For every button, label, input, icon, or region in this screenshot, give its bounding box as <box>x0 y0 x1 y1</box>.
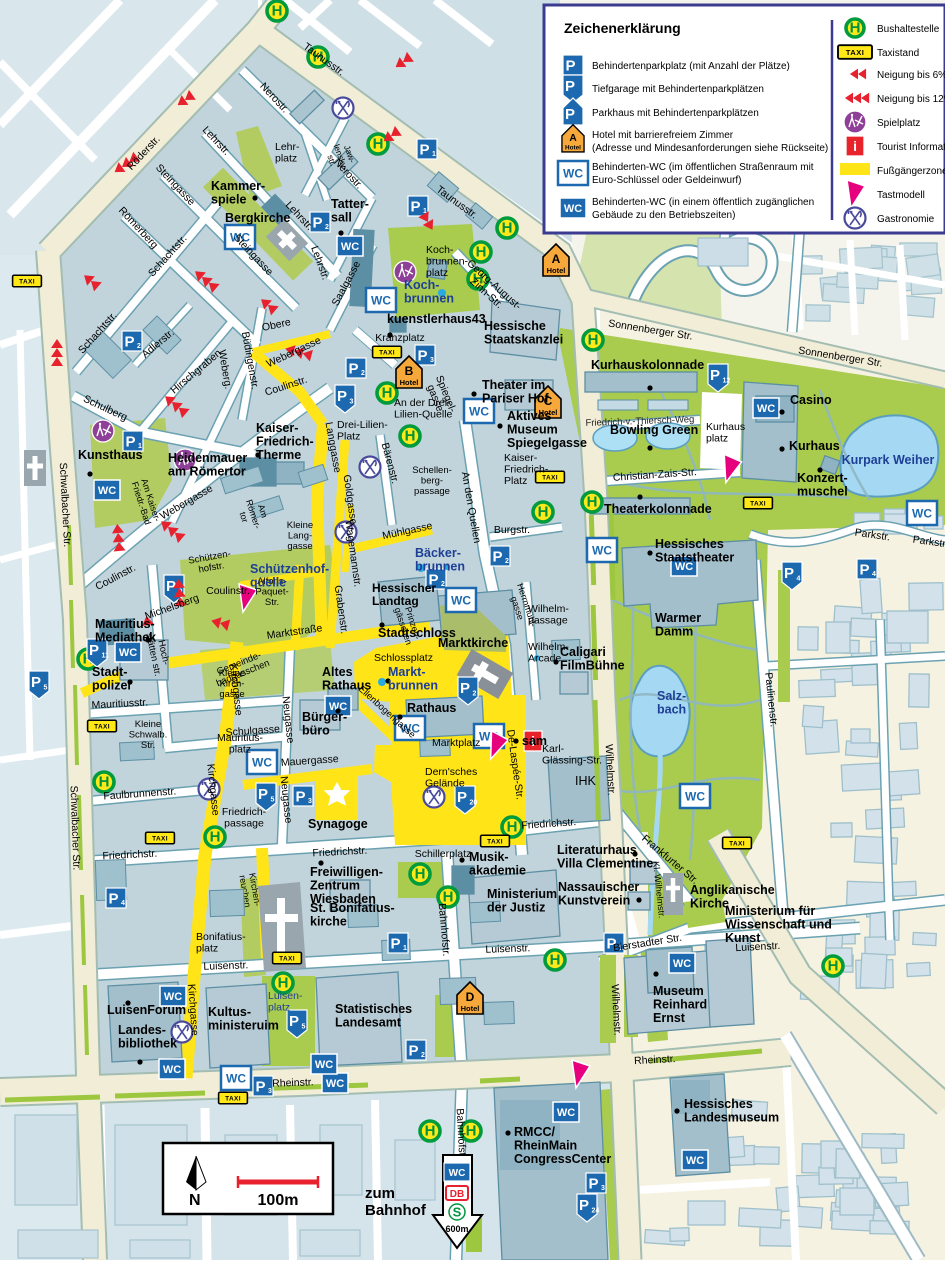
svg-text:TAXI: TAXI <box>379 350 395 357</box>
svg-text:P: P <box>419 142 429 159</box>
svg-text:H: H <box>373 136 384 153</box>
svg-text:Fußgängerzone: Fußgängerzone <box>877 166 945 177</box>
svg-text:H: H <box>210 829 221 846</box>
svg-text:Hotel: Hotel <box>461 1004 480 1013</box>
svg-text:20: 20 <box>470 800 478 807</box>
svg-text:Kurpark Weiher: Kurpark Weiher <box>842 453 935 467</box>
svg-text:TAXI: TAXI <box>225 1096 241 1103</box>
svg-text:Heidenmaueram Römertor: Heidenmaueram Römertor <box>168 451 247 479</box>
svg-text:P: P <box>255 1079 265 1096</box>
svg-text:Rheinstr.: Rheinstr. <box>272 1076 314 1089</box>
svg-text:Kunsthaus: Kunsthaus <box>78 448 143 462</box>
svg-text:H: H <box>850 20 861 37</box>
svg-text:TAXI: TAXI <box>487 839 503 846</box>
svg-text:H: H <box>502 220 513 237</box>
svg-text:Wilhelm-passage: Wilhelm-passage <box>528 603 569 627</box>
svg-text:DB: DB <box>450 1189 464 1200</box>
svg-text:Marktplatz: Marktplatz <box>432 737 480 749</box>
svg-text:H: H <box>99 774 110 791</box>
svg-text:P: P <box>492 549 502 566</box>
svg-text:IHK: IHK <box>575 774 597 788</box>
svg-text:NassauischerKunstverein: NassauischerKunstverein <box>558 880 639 908</box>
svg-text:KleineLang-gasse: KleineLang-gasse <box>287 520 313 552</box>
svg-text:WC: WC <box>564 203 582 215</box>
svg-text:P: P <box>460 680 470 697</box>
svg-text:P: P <box>258 786 268 803</box>
svg-text:TAXI: TAXI <box>729 841 745 848</box>
svg-text:WC: WC <box>912 507 932 521</box>
svg-text:P: P <box>295 789 305 806</box>
svg-text:P: P <box>784 565 794 582</box>
svg-text:P: P <box>337 388 347 405</box>
svg-text:kuenstlerhaus43: kuenstlerhaus43 <box>387 312 486 326</box>
svg-text:B: B <box>405 364 414 378</box>
svg-text:N: N <box>189 1192 201 1209</box>
svg-text:D: D <box>466 990 475 1004</box>
svg-text:TAXI: TAXI <box>750 501 766 508</box>
svg-text:Rheinstr.: Rheinstr. <box>634 1053 676 1067</box>
svg-text:TAXI: TAXI <box>94 724 110 731</box>
svg-text:Gastronomie: Gastronomie <box>877 214 935 225</box>
svg-text:5: 5 <box>271 797 275 804</box>
svg-text:WC: WC <box>371 294 391 308</box>
svg-text:Tastmodell: Tastmodell <box>877 190 925 201</box>
svg-text:2: 2 <box>325 224 329 231</box>
svg-text:P: P <box>859 562 869 579</box>
svg-text:H: H <box>550 952 561 969</box>
svg-text:WC: WC <box>469 405 489 419</box>
svg-text:Neigung bis 6%: Neigung bis 6% <box>877 70 945 81</box>
svg-text:P: P <box>710 367 720 384</box>
svg-text:Kranzplatz: Kranzplatz <box>375 332 425 344</box>
svg-text:3: 3 <box>430 357 434 364</box>
svg-text:WC: WC <box>163 1064 181 1076</box>
svg-text:Casino: Casino <box>790 393 832 407</box>
svg-text:11: 11 <box>102 653 110 660</box>
svg-text:2: 2 <box>421 1052 425 1059</box>
svg-text:KleineKirch-gasse: KleineKirch-gasse <box>219 668 245 700</box>
svg-text:Bergkirche: Bergkirche <box>225 211 290 225</box>
svg-text:WC: WC <box>341 241 359 253</box>
svg-text:WC: WC <box>164 991 182 1003</box>
svg-text:Taxistand: Taxistand <box>877 48 919 59</box>
svg-text:Schlossplatz: Schlossplatz <box>374 652 433 664</box>
svg-text:P: P <box>348 361 358 378</box>
svg-text:Bäcker-brunnen: Bäcker-brunnen <box>415 546 465 574</box>
svg-text:TAXI: TAXI <box>279 956 295 963</box>
svg-text:P: P <box>89 642 99 659</box>
svg-text:Neigung bis 12%: Neigung bis 12% <box>877 94 945 105</box>
svg-text:24: 24 <box>592 1208 600 1215</box>
svg-text:Hotel: Hotel <box>565 144 581 151</box>
svg-text:P: P <box>565 106 575 123</box>
svg-text:H: H <box>588 332 599 349</box>
svg-text:H: H <box>828 958 839 975</box>
svg-text:HessischesStaatstheater: HessischesStaatstheater <box>655 537 734 565</box>
svg-text:2: 2 <box>361 370 365 377</box>
svg-text:2: 2 <box>441 581 445 588</box>
svg-text:H: H <box>382 385 393 402</box>
svg-text:P: P <box>31 674 41 691</box>
svg-text:Friedrich-passage: Friedrich-passage <box>222 806 267 830</box>
svg-text:Parkhaus mit Behindertenparkpl: Parkhaus mit Behindertenparkplätzen <box>592 108 759 119</box>
svg-text:1: 1 <box>403 945 407 952</box>
svg-text:Hotel: Hotel <box>400 378 419 387</box>
svg-text:P: P <box>565 58 575 75</box>
svg-text:P: P <box>579 1197 589 1214</box>
svg-text:Bowling Green: Bowling Green <box>610 423 698 437</box>
svg-text:Lehr-platz: Lehr-platz <box>275 141 300 165</box>
svg-text:WC: WC <box>119 647 137 659</box>
svg-text:Tourist Information: Tourist Information <box>877 142 945 153</box>
svg-text:WC: WC <box>252 756 272 770</box>
svg-text:WC: WC <box>226 1072 246 1086</box>
svg-text:H: H <box>272 3 283 20</box>
svg-text:Theaterkolonnade: Theaterkolonnade <box>604 502 712 516</box>
svg-text:P: P <box>457 789 467 806</box>
svg-text:TAXI: TAXI <box>152 836 168 843</box>
svg-text:H: H <box>425 1123 436 1140</box>
svg-text:StatistischesLandesamt: StatistischesLandesamt <box>335 1002 412 1030</box>
svg-text:P: P <box>390 936 400 953</box>
svg-text:A: A <box>552 252 561 266</box>
svg-text:TAXI: TAXI <box>542 475 558 482</box>
svg-text:H: H <box>587 494 598 511</box>
svg-text:Coulinstr.: Coulinstr. <box>206 585 250 597</box>
svg-text:2: 2 <box>473 691 477 698</box>
svg-text:WC: WC <box>686 1155 704 1167</box>
svg-text:WC: WC <box>685 790 705 804</box>
svg-text:3: 3 <box>601 1185 605 1192</box>
svg-text:WC: WC <box>449 1168 466 1179</box>
svg-text:Kurhauskolonnade: Kurhauskolonnade <box>591 358 704 372</box>
svg-text:WC: WC <box>757 403 775 415</box>
svg-text:2: 2 <box>505 558 509 565</box>
svg-text:WC: WC <box>451 594 471 608</box>
svg-text:Behindertenparkplatz (mit Anza: Behindertenparkplatz (mit Anzahl der Plä… <box>592 61 790 72</box>
svg-text:WC: WC <box>557 1107 575 1119</box>
svg-text:12: 12 <box>723 378 731 385</box>
svg-text:Salz-bach: Salz-bach <box>657 689 686 717</box>
svg-text:P: P <box>588 1176 598 1193</box>
svg-text:P: P <box>108 891 118 908</box>
svg-text:H: H <box>507 819 518 836</box>
svg-text:H: H <box>278 975 289 992</box>
svg-text:WC: WC <box>326 1078 344 1090</box>
svg-text:P: P <box>565 78 575 95</box>
svg-text:i: i <box>853 138 857 154</box>
svg-text:WC: WC <box>673 958 691 970</box>
svg-text:P: P <box>417 348 427 365</box>
svg-text:3: 3 <box>308 798 312 805</box>
svg-text:Theater imPariser Hof: Theater imPariser Hof <box>482 378 550 406</box>
svg-text:H: H <box>415 866 426 883</box>
svg-text:P: P <box>124 334 134 351</box>
svg-text:Stadt-polizei: Stadt-polizei <box>92 665 131 693</box>
svg-text:LuisenForum: LuisenForum <box>107 1003 186 1017</box>
svg-text:Tiefgarage mit Behindertenpark: Tiefgarage mit Behindertenparkplätzen <box>592 84 764 95</box>
svg-text:4: 4 <box>872 571 876 578</box>
svg-text:Bushaltestelle: Bushaltestelle <box>877 24 940 35</box>
svg-text:100m: 100m <box>258 1192 299 1209</box>
svg-text:P: P <box>410 199 420 216</box>
svg-text:Luisenstr.: Luisenstr. <box>203 959 248 973</box>
svg-text:Rathaus: Rathaus <box>407 701 456 715</box>
svg-text:H: H <box>538 504 549 521</box>
svg-text:Marktkirche: Marktkirche <box>438 636 508 650</box>
svg-text:2: 2 <box>137 343 141 350</box>
svg-text:4: 4 <box>797 576 801 583</box>
svg-text:Zeichenerklärung: Zeichenerklärung <box>564 20 681 36</box>
svg-text:600m: 600m <box>445 1224 468 1234</box>
svg-text:Synagoge: Synagoge <box>308 817 368 831</box>
svg-text:P: P <box>289 1013 299 1030</box>
svg-text:Konzert-muschel: Konzert-muschel <box>797 471 848 499</box>
svg-text:S: S <box>453 1205 462 1220</box>
svg-text:Spielplatz: Spielplatz <box>877 118 920 129</box>
svg-text:WC: WC <box>98 485 116 497</box>
svg-text:5: 5 <box>302 1024 306 1031</box>
svg-text:TAXI: TAXI <box>846 48 865 57</box>
svg-text:P: P <box>408 1043 418 1060</box>
svg-text:Kurhaus: Kurhaus <box>789 439 840 453</box>
svg-text:WC: WC <box>592 544 612 558</box>
svg-text:1: 1 <box>432 151 436 158</box>
svg-text:A: A <box>569 133 577 144</box>
svg-text:H: H <box>476 244 487 261</box>
svg-text:Hotel: Hotel <box>547 266 566 275</box>
svg-text:4: 4 <box>121 900 125 907</box>
svg-text:3: 3 <box>350 399 354 406</box>
svg-text:Luisenstr.: Luisenstr. <box>485 942 530 956</box>
svg-text:WC: WC <box>563 167 583 181</box>
svg-text:5: 5 <box>44 685 48 692</box>
svg-text:WC: WC <box>315 1059 333 1071</box>
svg-text:TAXI: TAXI <box>19 279 35 286</box>
svg-text:H: H <box>405 428 416 445</box>
svg-text:Burgstr.: Burgstr. <box>494 524 530 536</box>
